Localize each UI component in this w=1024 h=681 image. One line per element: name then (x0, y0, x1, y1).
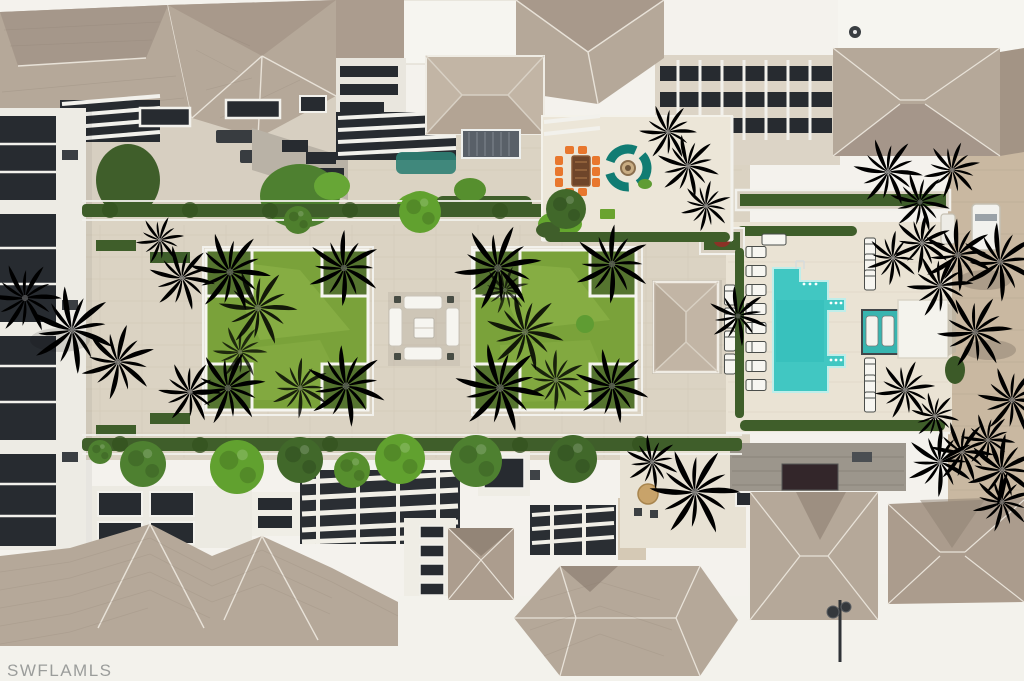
pool-step-dot (815, 283, 818, 286)
white-sofa (446, 308, 459, 346)
window (420, 583, 444, 595)
aerial-photo: SWFLAMLS (0, 0, 1024, 681)
hedge-bump (512, 437, 528, 453)
pool-lounger (746, 380, 766, 391)
pool-step-dot (830, 302, 833, 305)
round-tree (88, 440, 112, 464)
lawn-shrub (576, 315, 594, 333)
ac-unit (216, 130, 254, 143)
roof-lamp-bulb (853, 30, 857, 34)
pool-lounger (865, 270, 876, 290)
window-slit (340, 102, 384, 112)
round-tree (334, 452, 370, 488)
round-tree (450, 435, 502, 487)
hip-roof (514, 566, 738, 676)
pool-lounger (865, 392, 876, 412)
glass-wall (0, 116, 56, 200)
hedge-bump (192, 437, 208, 453)
patio-hedge (545, 232, 730, 242)
round-mat (638, 484, 658, 504)
flat-recliner (762, 234, 786, 245)
pole-lamp (841, 602, 851, 612)
chair (555, 167, 563, 176)
hip-roof (1000, 48, 1024, 156)
white-sofa (404, 296, 442, 309)
walkway-hedge (150, 413, 190, 424)
walkway-hedge (96, 240, 136, 251)
fire-pit-center (625, 165, 631, 171)
shrub (454, 178, 486, 202)
round-tree (277, 437, 323, 483)
balcony-detail (62, 150, 78, 160)
white-sofa (404, 347, 442, 360)
vent (852, 452, 872, 462)
pool-step-dot (809, 283, 812, 286)
pool-lounger (746, 342, 766, 353)
driveway-pavers (948, 140, 1024, 540)
pool-step-dot (835, 302, 838, 305)
round-tree (399, 191, 441, 233)
side-table (447, 353, 454, 360)
white-sofa (389, 308, 402, 346)
round-tree (120, 441, 166, 487)
skylight (150, 492, 194, 516)
pool-hedge-bottom (740, 420, 945, 431)
pool-hedge-top (737, 226, 857, 236)
window-slit (340, 66, 398, 77)
terrace-shrub (314, 172, 350, 200)
chair (578, 146, 587, 154)
aerial-photo-frame: SWFLAMLS (0, 0, 1024, 681)
glass-wall (0, 454, 56, 546)
pool-step-dot (835, 359, 838, 362)
pool-lounger (746, 266, 766, 277)
flat-roof-white (392, 0, 520, 64)
side-table (394, 353, 401, 360)
hedge-bump (182, 202, 198, 218)
pool-lounger (746, 361, 766, 372)
skylight (258, 516, 292, 528)
round-tree (284, 206, 312, 234)
hedge-bump (492, 203, 508, 219)
hedge-bump (342, 202, 358, 218)
canopy-shadow (948, 304, 956, 356)
hedge-bump (102, 202, 118, 218)
pool-step-dot (830, 359, 833, 362)
chair (634, 508, 642, 516)
chair (650, 510, 658, 518)
pool-deep-water (776, 300, 824, 362)
awning (462, 130, 520, 158)
pool-step-dot (840, 359, 843, 362)
skylight (300, 96, 326, 112)
balcony-detail (62, 452, 78, 462)
dining-table (572, 156, 590, 186)
pool-lounger (746, 285, 766, 296)
hedge-bump (262, 203, 278, 219)
potted-plant (638, 179, 652, 189)
glass-wall (0, 214, 56, 322)
round-tree (546, 189, 586, 229)
pool-lounger (746, 247, 766, 258)
pool-step-dot (803, 283, 806, 286)
round-tree (375, 434, 425, 484)
skylight (98, 492, 142, 516)
round-tree (210, 440, 264, 494)
chair (592, 167, 600, 176)
chair (555, 156, 563, 165)
flat-roof-white (838, 0, 1024, 52)
hedge-bump (322, 436, 338, 452)
roof-face (0, 5, 168, 66)
in-water-lounger (866, 316, 878, 346)
van-windshield (975, 214, 997, 221)
window (420, 526, 444, 538)
window (420, 545, 444, 557)
facade-shadow (86, 110, 92, 550)
lounger (725, 354, 736, 374)
skylight (140, 108, 190, 126)
skylight (226, 100, 280, 118)
chair (565, 146, 574, 154)
side-table (394, 296, 401, 303)
pool-step-dot (840, 302, 843, 305)
window (282, 140, 308, 152)
in-water-lounger (882, 316, 894, 346)
security-camera (827, 606, 839, 618)
chair (592, 178, 600, 187)
watermark-text: SWFLAMLS (7, 661, 113, 680)
solar-panel (782, 464, 838, 490)
terrace-glass-row (660, 66, 832, 81)
round-tree (549, 435, 597, 483)
turf-mat (600, 209, 615, 219)
terrace-glass-row (660, 92, 832, 107)
window-slit (340, 84, 398, 95)
hedge-bump (632, 436, 648, 452)
side-table (447, 296, 454, 303)
chair (592, 156, 600, 165)
window (306, 152, 336, 164)
chair (555, 178, 563, 187)
blue-planting (396, 152, 456, 174)
window (420, 564, 444, 576)
skylight (258, 498, 292, 510)
